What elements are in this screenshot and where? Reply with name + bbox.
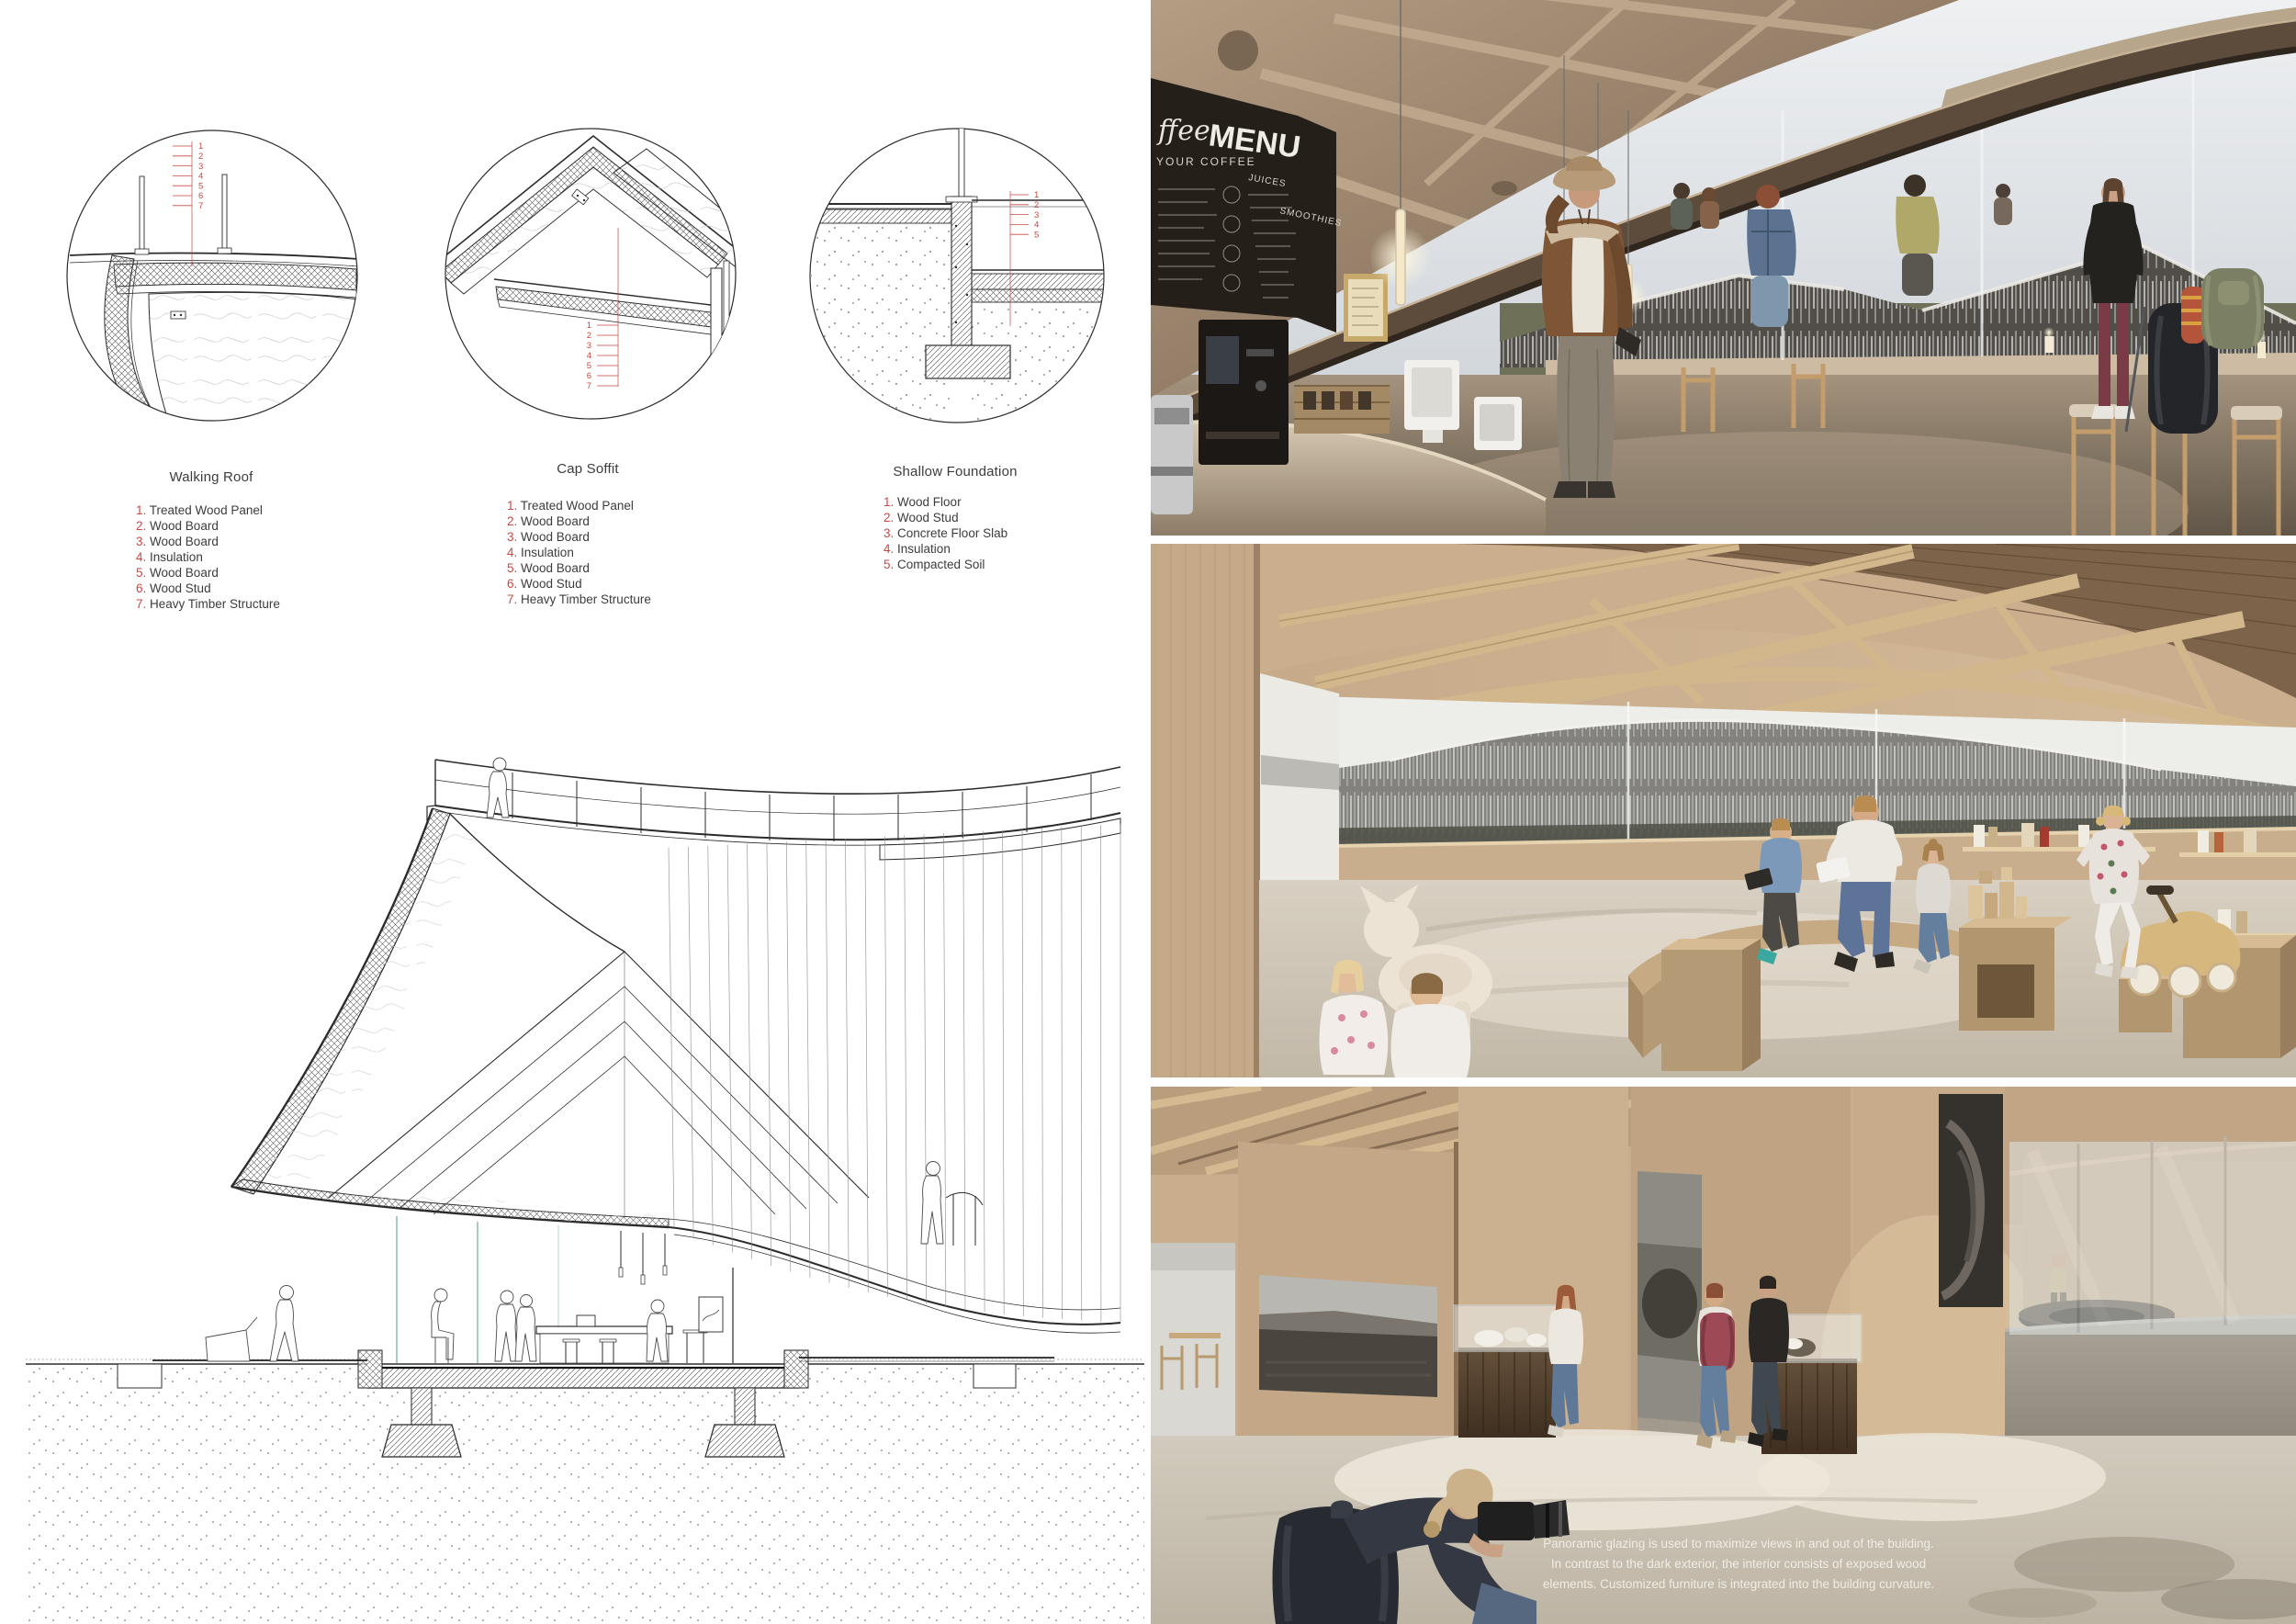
legend-cap-soffit: Treated Wood Panel Wood Board Wood Board… <box>507 498 651 607</box>
legend-item: Insulation <box>136 549 280 565</box>
legend-item: Wood Stud <box>136 581 280 596</box>
render-exhibition: Panoramic glazing is used to maximize vi… <box>1151 1087 2296 1624</box>
roof-railing <box>435 760 1120 841</box>
people-standing-pair <box>495 1291 536 1361</box>
coffee-machine <box>1199 320 1289 465</box>
display-vitrine-1 <box>1454 1305 1560 1438</box>
bar-counter <box>536 1315 707 1363</box>
framed-poster <box>1344 274 1388 342</box>
detail-drawing-walking-roof: 1234567 <box>61 119 364 432</box>
pendant-lights <box>619 1231 667 1284</box>
svg-text:4: 4 <box>1034 220 1039 231</box>
detail-drawing-shallow-foundation: 12345 <box>797 116 1117 435</box>
legend-item: Wood Board <box>136 565 280 581</box>
legend-item: Concrete Floor Slab <box>884 525 1007 541</box>
person-walking-left <box>270 1286 298 1362</box>
glass-crater-room <box>2005 1087 2296 1452</box>
svg-text:3: 3 <box>1034 210 1039 220</box>
deck-railing <box>946 1192 983 1246</box>
caption: Panoramic glazing is used to maximize vi… <box>1543 1537 1934 1591</box>
legend-item: Wood Board <box>507 529 651 545</box>
svg-text:5: 5 <box>198 181 203 191</box>
svg-text:5: 5 <box>1034 230 1039 240</box>
menu-script-word: ffee <box>1156 115 1210 147</box>
wall-art <box>699 1268 733 1363</box>
svg-text:1: 1 <box>198 141 203 152</box>
caption-line-1: Panoramic glazing is used to maximize vi… <box>1543 1537 1933 1551</box>
legend-item: Insulation <box>507 545 651 560</box>
legend-item: Wood Stud <box>884 510 1007 525</box>
svg-text:7: 7 <box>587 381 591 391</box>
detail-title-walking-roof: Walking Roof <box>73 469 349 485</box>
menu-subtitle: YOUR COFFEE <box>1156 155 1256 168</box>
legend-item: Compacted Soil <box>884 557 1007 572</box>
svg-text:4: 4 <box>587 351 591 361</box>
legend-item: Treated Wood Panel <box>507 498 651 513</box>
timber-facade-lines <box>669 824 1120 1323</box>
legend-item: Wood Board <box>507 513 651 529</box>
roof-shell <box>231 806 1120 1333</box>
svg-text:7: 7 <box>198 201 203 211</box>
svg-text:3: 3 <box>587 341 591 351</box>
wood-pillar <box>1158 544 1260 1077</box>
svg-text:4: 4 <box>198 172 203 182</box>
svg-text:1: 1 <box>1034 190 1039 200</box>
svg-text:6: 6 <box>198 191 203 201</box>
legend-walking-roof: Treated Wood Panel Wood Board Wood Board… <box>136 502 280 612</box>
caption-line-3: elements. Customized furniture is integr… <box>1543 1577 1934 1591</box>
detail-drawing-cap-soffit: 1234567 <box>439 116 742 432</box>
legend-item: Wood Board <box>136 518 280 534</box>
detail-title-cap-soffit: Cap Soffit <box>450 461 726 477</box>
legend-item: Insulation <box>884 541 1007 557</box>
render-cafe-interior: ffee MENU YOUR COFFEE JUICES SMOOTHIES <box>1151 0 2296 536</box>
svg-text:2: 2 <box>198 152 203 162</box>
detail-title-shallow-foundation: Shallow Foundation <box>817 464 1093 479</box>
lounge-chair <box>206 1317 257 1361</box>
person-seated-bar <box>432 1289 454 1363</box>
legend-item: Heavy Timber Structure <box>507 592 651 607</box>
caption-line-2: In contrast to the dark exterior, the in… <box>1551 1557 1926 1571</box>
svg-text:2: 2 <box>587 331 591 341</box>
legend-item: Treated Wood Panel <box>136 502 280 518</box>
render-play-area <box>1151 544 2296 1077</box>
legend-shallow-foundation: Wood Floor Wood Stud Concrete Floor Slab… <box>884 494 1007 572</box>
svg-text:3: 3 <box>198 162 203 172</box>
svg-text:2: 2 <box>1034 200 1039 210</box>
presentation-board: 1234567 <box>0 0 2296 1624</box>
legend-item: Heavy Timber Structure <box>136 596 280 612</box>
legend-item: Wood Board <box>136 534 280 549</box>
soil-ground <box>26 1359 1144 1624</box>
seated-guest-far-2 <box>1700 187 1719 229</box>
espresso-machine <box>1151 395 1193 514</box>
legend-item: Wood Board <box>507 560 651 576</box>
legend-item: Wood Floor <box>884 494 1007 510</box>
person-right-deck <box>921 1162 943 1245</box>
building-section-drawing <box>26 683 1144 1624</box>
seated-guest-far <box>1671 183 1693 230</box>
legend-item: Wood Stud <box>507 576 651 592</box>
svg-text:6: 6 <box>587 371 591 381</box>
svg-text:1: 1 <box>587 321 591 331</box>
retail-crate <box>1294 386 1390 434</box>
svg-text:5: 5 <box>587 361 591 371</box>
distant-guests <box>1994 184 2012 225</box>
